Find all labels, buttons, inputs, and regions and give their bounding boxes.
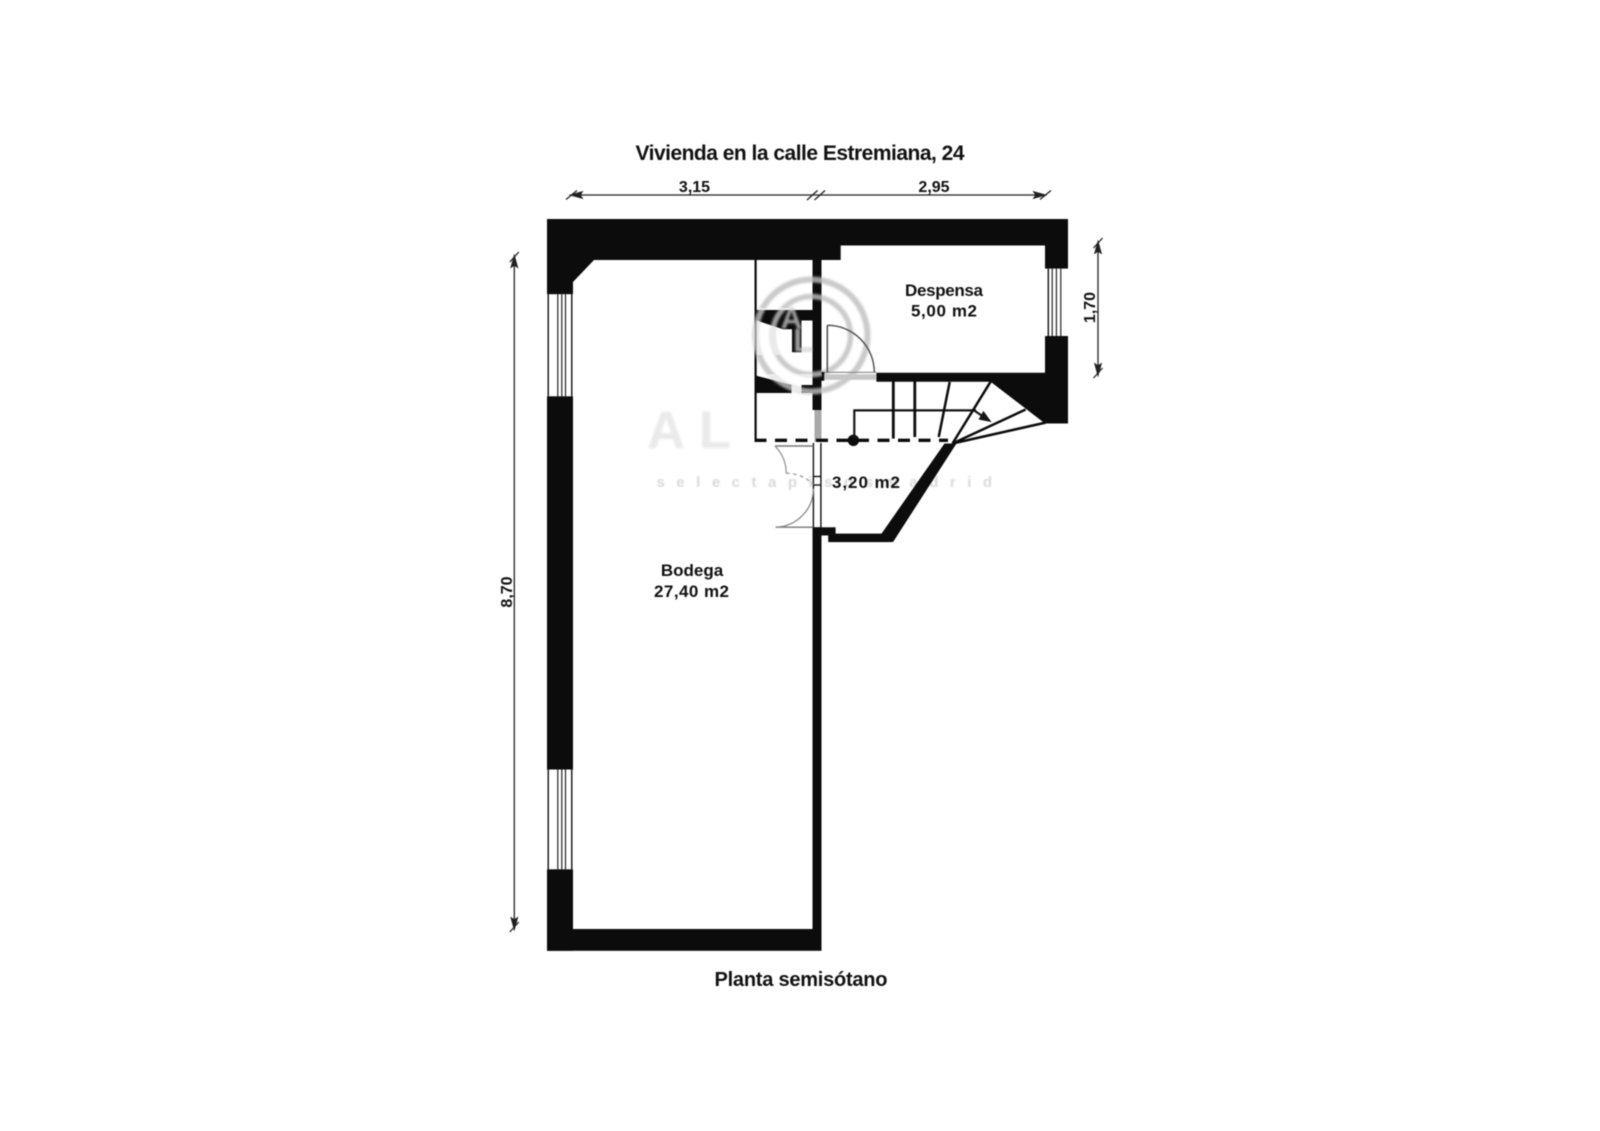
svg-text:3,15: 3,15: [679, 179, 710, 196]
svg-text:Planta semisótano: Planta semisótano: [715, 969, 888, 991]
svg-text:3,20 m2: 3,20 m2: [832, 473, 900, 492]
svg-text:L: L: [793, 323, 813, 359]
svg-text:selectapisosmadrid: selectapisosmadrid: [656, 474, 1003, 491]
svg-text:Vivienda en la calle Estremian: Vivienda en la calle Estremiana, 24: [636, 142, 965, 165]
svg-text:2,95: 2,95: [918, 179, 949, 196]
svg-text:L: L: [699, 401, 731, 460]
svg-text:27,40 m2: 27,40 m2: [654, 582, 729, 601]
svg-text:Despensa: Despensa: [905, 281, 984, 300]
svg-text:Bodega: Bodega: [661, 561, 724, 580]
svg-text:8,70: 8,70: [499, 576, 516, 607]
svg-text:5,00 m2: 5,00 m2: [911, 302, 977, 321]
svg-text:A: A: [647, 402, 685, 461]
svg-text:1,70: 1,70: [1082, 292, 1099, 323]
